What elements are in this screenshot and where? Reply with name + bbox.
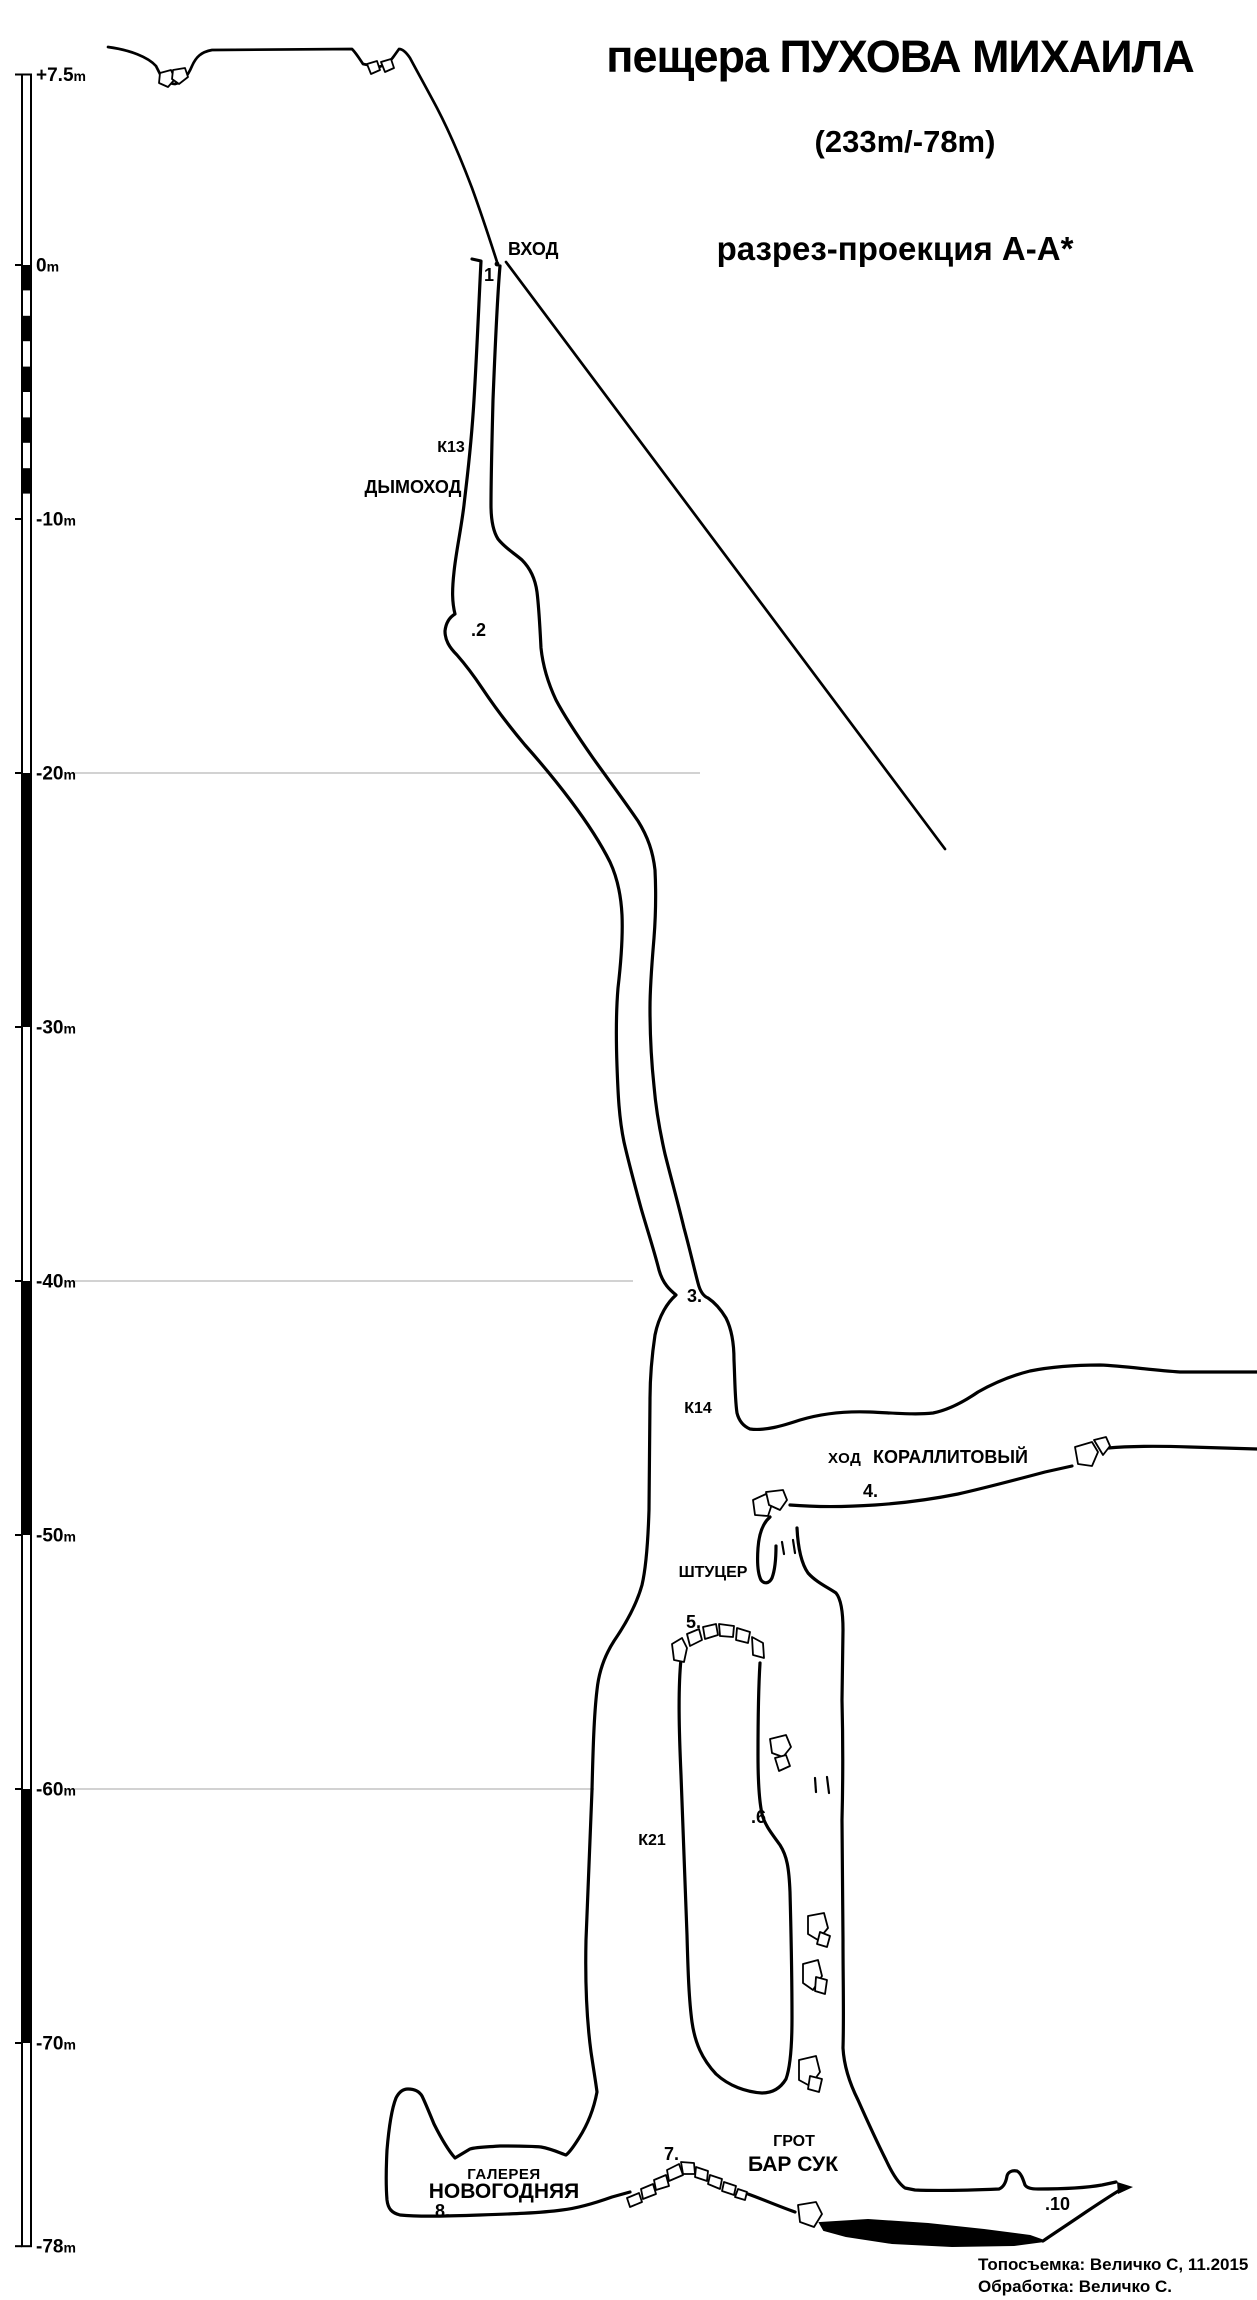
scale-tick-label: -20m	[36, 764, 76, 785]
scale-tick-label: -10m	[36, 510, 76, 531]
label-gallery-name: НОВОГОДНЯЯ	[429, 2180, 579, 2203]
projection-label: разрез-проекция А-А*	[717, 230, 1074, 267]
label-entrance: ВХОД	[508, 239, 559, 259]
label-k14: К14	[684, 1400, 712, 1417]
label-shtutser: ШТУЦЕР	[679, 1564, 748, 1581]
scale-tick-label: 0m	[36, 256, 59, 277]
station-7: 7.	[664, 2144, 679, 2164]
scale-tick-label: -60m	[36, 1780, 76, 1801]
station-2: .2	[471, 620, 486, 640]
label-grotto-name: БАР СУК	[748, 2153, 838, 2176]
label-k21: К21	[638, 1832, 666, 1849]
scale-bar-black-band	[22, 316, 31, 341]
credit-survey: Топосъемка: Величко С, 11.2015	[978, 2255, 1248, 2274]
scale-tick-label: -78m	[36, 2237, 76, 2258]
page-title: пещера ПУХОВА МИХАИЛА	[606, 31, 1194, 82]
rock	[808, 2076, 822, 2092]
scale-tick-label: -30m	[36, 1018, 76, 1039]
station-6: .6	[751, 1807, 766, 1827]
scale-bar-black-band	[22, 265, 31, 290]
scale-bar-black-band	[22, 367, 31, 392]
cave-survey-drawing: +7.5m0m-10m-20m-30m-40m-50m-60m-70m-78m	[0, 0, 1257, 2300]
station-1: 1	[484, 265, 494, 285]
scale-bar-black-band	[22, 417, 31, 442]
cave-survey-page: +7.5m0m-10m-20m-30m-40m-50m-60m-70m-78m	[0, 0, 1257, 2300]
rock	[815, 1977, 827, 1994]
scale-bar-black-band	[22, 1281, 31, 1535]
label-chimney: ДЫМОХОД	[365, 477, 462, 497]
station-3: 3.	[687, 1286, 702, 1306]
credit-processing: Обработка: Величко С.	[978, 2277, 1172, 2296]
label-passage-word: ХОД	[828, 1450, 861, 1467]
rock	[735, 2189, 747, 2200]
station-5: 5.	[686, 1612, 701, 1632]
scale-bar-black-band	[22, 773, 31, 1027]
label-passage-name: КОРАЛЛИТОВЫЙ	[873, 1446, 1028, 1467]
rock	[681, 2162, 695, 2174]
scale-bar-black-band	[22, 1789, 31, 2043]
label-k13: К13	[437, 439, 465, 456]
station-10: .10	[1045, 2194, 1070, 2214]
station-8: 8.	[435, 2201, 450, 2221]
scale-tick-label: -50m	[36, 1526, 76, 1547]
scale-tick-label: -70m	[36, 2034, 76, 2055]
label-grotto-word: ГРОТ	[773, 2133, 815, 2150]
cave-stats: (233m/-78m)	[815, 124, 996, 159]
station-4: 4.	[863, 1481, 878, 1501]
rock	[719, 1624, 734, 1637]
scale-bar-black-band	[22, 468, 31, 493]
station-1-dot	[495, 262, 500, 267]
scale-tick-label: -40m	[36, 1272, 76, 1293]
scale-tick-label: +7.5m	[36, 65, 86, 86]
background	[0, 0, 1257, 2300]
